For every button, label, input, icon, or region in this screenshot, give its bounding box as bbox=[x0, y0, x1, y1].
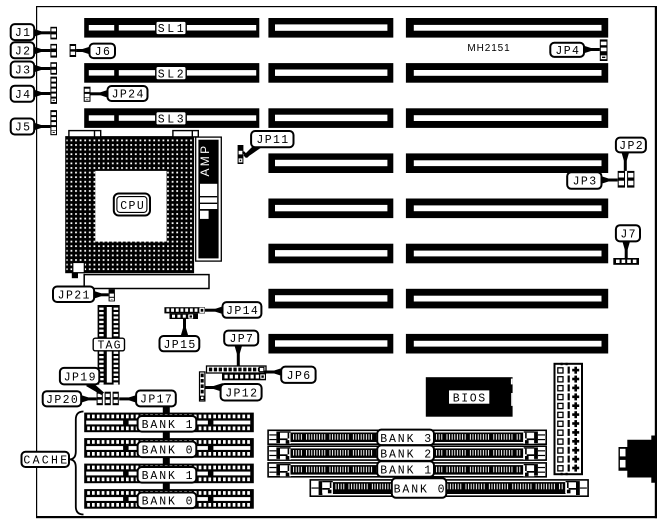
svg-text:JP6: JP6 bbox=[287, 370, 312, 383]
svg-text:JP2: JP2 bbox=[619, 140, 644, 153]
svg-text:J6: J6 bbox=[95, 46, 112, 59]
svg-text:BANK 1: BANK 1 bbox=[142, 419, 195, 432]
svg-text:J1: J1 bbox=[15, 27, 32, 40]
svg-text:JP12: JP12 bbox=[225, 387, 258, 400]
svg-text:JP4: JP4 bbox=[555, 45, 580, 58]
svg-text:JP19: JP19 bbox=[64, 371, 97, 384]
svg-text:SL2: SL2 bbox=[158, 68, 187, 81]
svg-text:AMP: AMP bbox=[198, 144, 212, 177]
svg-text:CPU: CPU bbox=[120, 200, 145, 213]
svg-text:BIOS: BIOS bbox=[453, 392, 487, 405]
svg-text:J3: J3 bbox=[15, 65, 32, 78]
svg-text:JP3: JP3 bbox=[573, 176, 598, 189]
svg-text:BANK 0: BANK 0 bbox=[142, 444, 195, 457]
svg-text:J2: J2 bbox=[15, 45, 32, 58]
svg-text:BANK 0: BANK 0 bbox=[142, 495, 195, 508]
svg-text:MH2151: MH2151 bbox=[467, 43, 510, 54]
svg-text:BANK 1: BANK 1 bbox=[142, 470, 195, 483]
svg-text:JP11: JP11 bbox=[256, 134, 289, 147]
svg-text:JP20: JP20 bbox=[46, 394, 79, 407]
svg-text:TAG: TAG bbox=[97, 340, 121, 353]
svg-text:JP24: JP24 bbox=[112, 89, 145, 102]
svg-text:SL3: SL3 bbox=[158, 114, 187, 127]
svg-text:JP15: JP15 bbox=[163, 339, 196, 352]
svg-text:JP17: JP17 bbox=[140, 394, 173, 407]
svg-text:SL1: SL1 bbox=[158, 23, 187, 36]
svg-text:JP7: JP7 bbox=[229, 333, 254, 346]
svg-text:JP21: JP21 bbox=[58, 289, 91, 302]
svg-text:J5: J5 bbox=[15, 122, 32, 135]
svg-text:BANK 0: BANK 0 bbox=[394, 483, 447, 496]
svg-text:J7: J7 bbox=[620, 228, 637, 241]
svg-text:CACHE: CACHE bbox=[23, 455, 69, 468]
svg-text:BANK 1: BANK 1 bbox=[380, 464, 433, 477]
svg-text:BANK 2: BANK 2 bbox=[380, 449, 433, 462]
svg-text:BANK 3: BANK 3 bbox=[380, 433, 433, 446]
svg-text:J4: J4 bbox=[15, 89, 32, 102]
svg-text:JP14: JP14 bbox=[226, 305, 259, 318]
